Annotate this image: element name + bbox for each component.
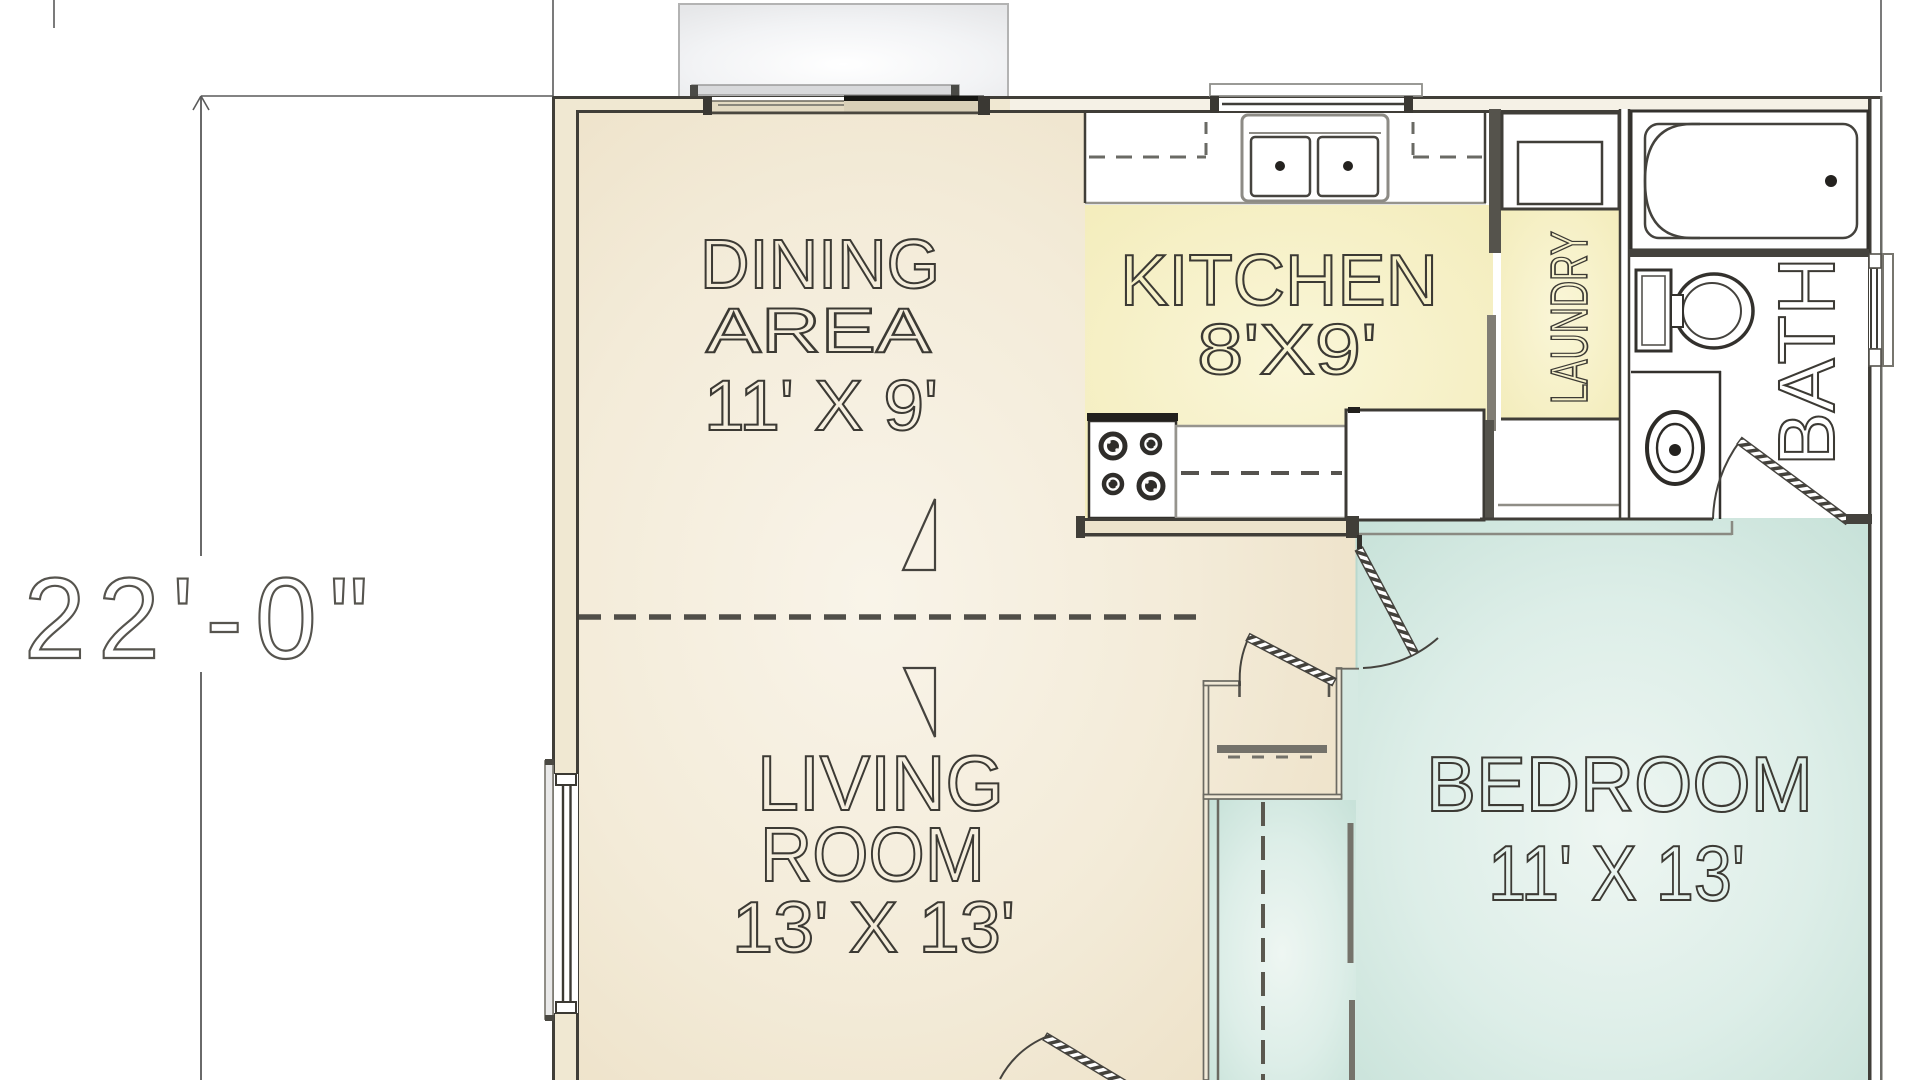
svg-text:KITCHEN: KITCHEN <box>1120 241 1438 321</box>
svg-text:LAUNDRY: LAUNDRY <box>1541 231 1599 404</box>
svg-text:DINING: DINING <box>700 225 940 303</box>
svg-text:ROOM: ROOM <box>760 812 985 898</box>
svg-text:11' X 13': 11' X 13' <box>1488 829 1745 917</box>
svg-text:AREA: AREA <box>706 296 931 366</box>
svg-text:8'X9': 8'X9' <box>1197 311 1377 390</box>
svg-text:BATH: BATH <box>1762 257 1851 466</box>
svg-text:22'-0": 22'-0" <box>24 555 381 683</box>
svg-text:BEDROOM: BEDROOM <box>1426 740 1813 828</box>
svg-text:11' X 9': 11' X 9' <box>704 367 938 446</box>
svg-text:13' X 13': 13' X 13' <box>732 888 1015 968</box>
